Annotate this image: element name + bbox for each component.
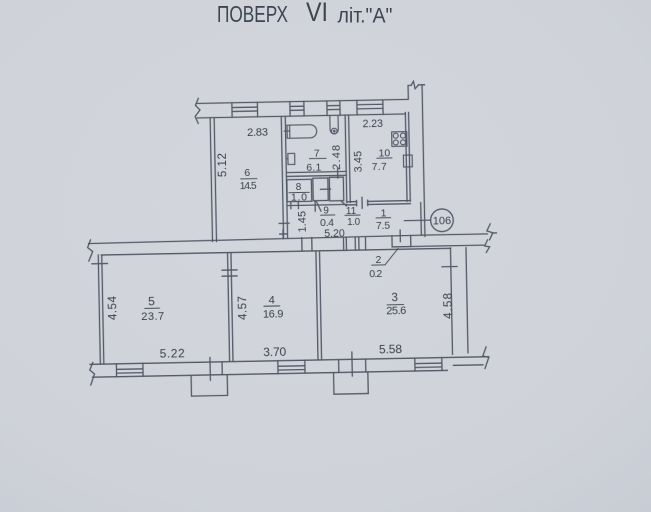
svg-text:2.23: 2.23 <box>362 118 383 130</box>
svg-text:23.7: 23.7 <box>141 310 164 322</box>
svg-text:3.70: 3.70 <box>263 345 287 359</box>
svg-text:16.9: 16.9 <box>263 308 284 320</box>
svg-text:3: 3 <box>391 292 398 304</box>
svg-text:5: 5 <box>148 294 155 308</box>
svg-text:1.0: 1.0 <box>347 217 361 228</box>
svg-text:4.54: 4.54 <box>107 295 119 320</box>
svg-text:літ."А": літ."А" <box>338 5 393 28</box>
svg-text:4.58: 4.58 <box>442 293 454 319</box>
svg-text:5.12: 5.12 <box>217 153 229 177</box>
svg-text:6.1: 6.1 <box>306 163 321 174</box>
svg-text:25.6: 25.6 <box>386 305 406 317</box>
svg-text:5.20: 5.20 <box>324 228 345 240</box>
svg-text:0.2: 0.2 <box>369 268 382 280</box>
svg-text:14.5: 14.5 <box>240 181 257 192</box>
svg-text:4.57: 4.57 <box>237 296 249 320</box>
svg-text:7.7: 7.7 <box>372 162 387 173</box>
svg-text:1.0: 1.0 <box>291 191 307 203</box>
svg-text:7.5: 7.5 <box>376 221 390 232</box>
svg-text:1.45: 1.45 <box>296 211 308 233</box>
svg-text:6: 6 <box>244 167 250 179</box>
svg-text:10: 10 <box>378 147 390 159</box>
svg-text:2.48: 2.48 <box>330 145 342 170</box>
svg-text:2.83: 2.83 <box>247 127 268 139</box>
svg-text:2: 2 <box>375 254 381 266</box>
svg-text:4: 4 <box>268 294 275 306</box>
svg-text:3.45: 3.45 <box>352 151 364 173</box>
svg-text:5.58: 5.58 <box>379 342 403 356</box>
svg-text:ПОВЕРХ: ПОВЕРХ <box>217 1 288 27</box>
svg-text:106: 106 <box>433 215 452 227</box>
svg-text:VI: VI <box>306 0 328 27</box>
svg-text:5.22: 5.22 <box>160 346 186 360</box>
svg-text:7: 7 <box>314 148 320 160</box>
